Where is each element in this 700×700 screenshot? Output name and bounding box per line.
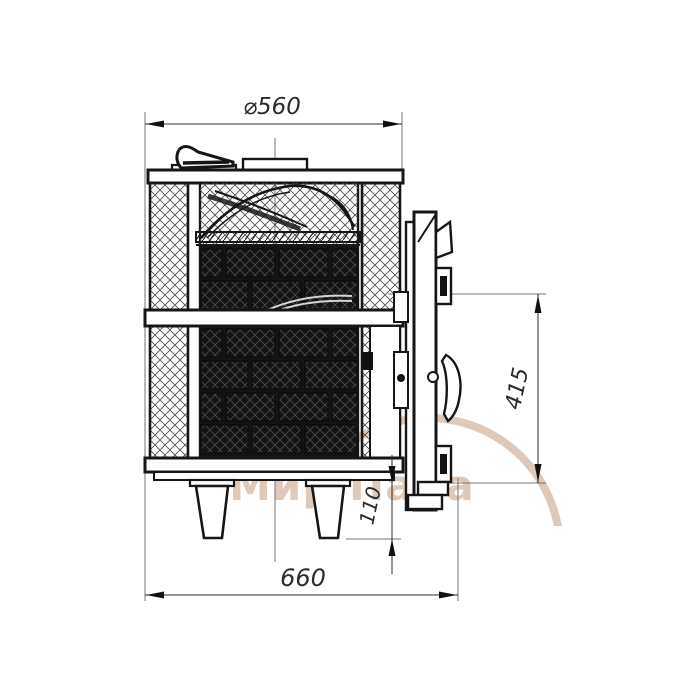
dim-label-415: 415 — [501, 366, 534, 412]
stove-technical-drawing: Мир Пара — [0, 0, 700, 700]
chimney-collar — [243, 159, 307, 170]
dim-label-560: ⌀560 — [243, 94, 301, 120]
base-step — [154, 472, 394, 480]
damper-handle — [172, 146, 236, 171]
dimension-overall-width: 660 — [145, 564, 458, 599]
hinge-bottom — [436, 446, 451, 482]
middle-shelf-band — [145, 310, 403, 326]
bottom-band — [145, 458, 403, 472]
left-leg — [190, 480, 234, 538]
dim-label-660: 660 — [280, 564, 326, 592]
door-main-bar — [414, 212, 436, 510]
hinge-top — [436, 268, 451, 304]
door-top-bracket — [436, 222, 452, 258]
top-plate — [148, 170, 403, 183]
stove-body — [145, 146, 403, 538]
brick-masonry — [200, 246, 358, 458]
drawing-page: Мир Пара — [0, 0, 700, 700]
dimension-top-diameter: ⌀560 — [145, 94, 402, 128]
